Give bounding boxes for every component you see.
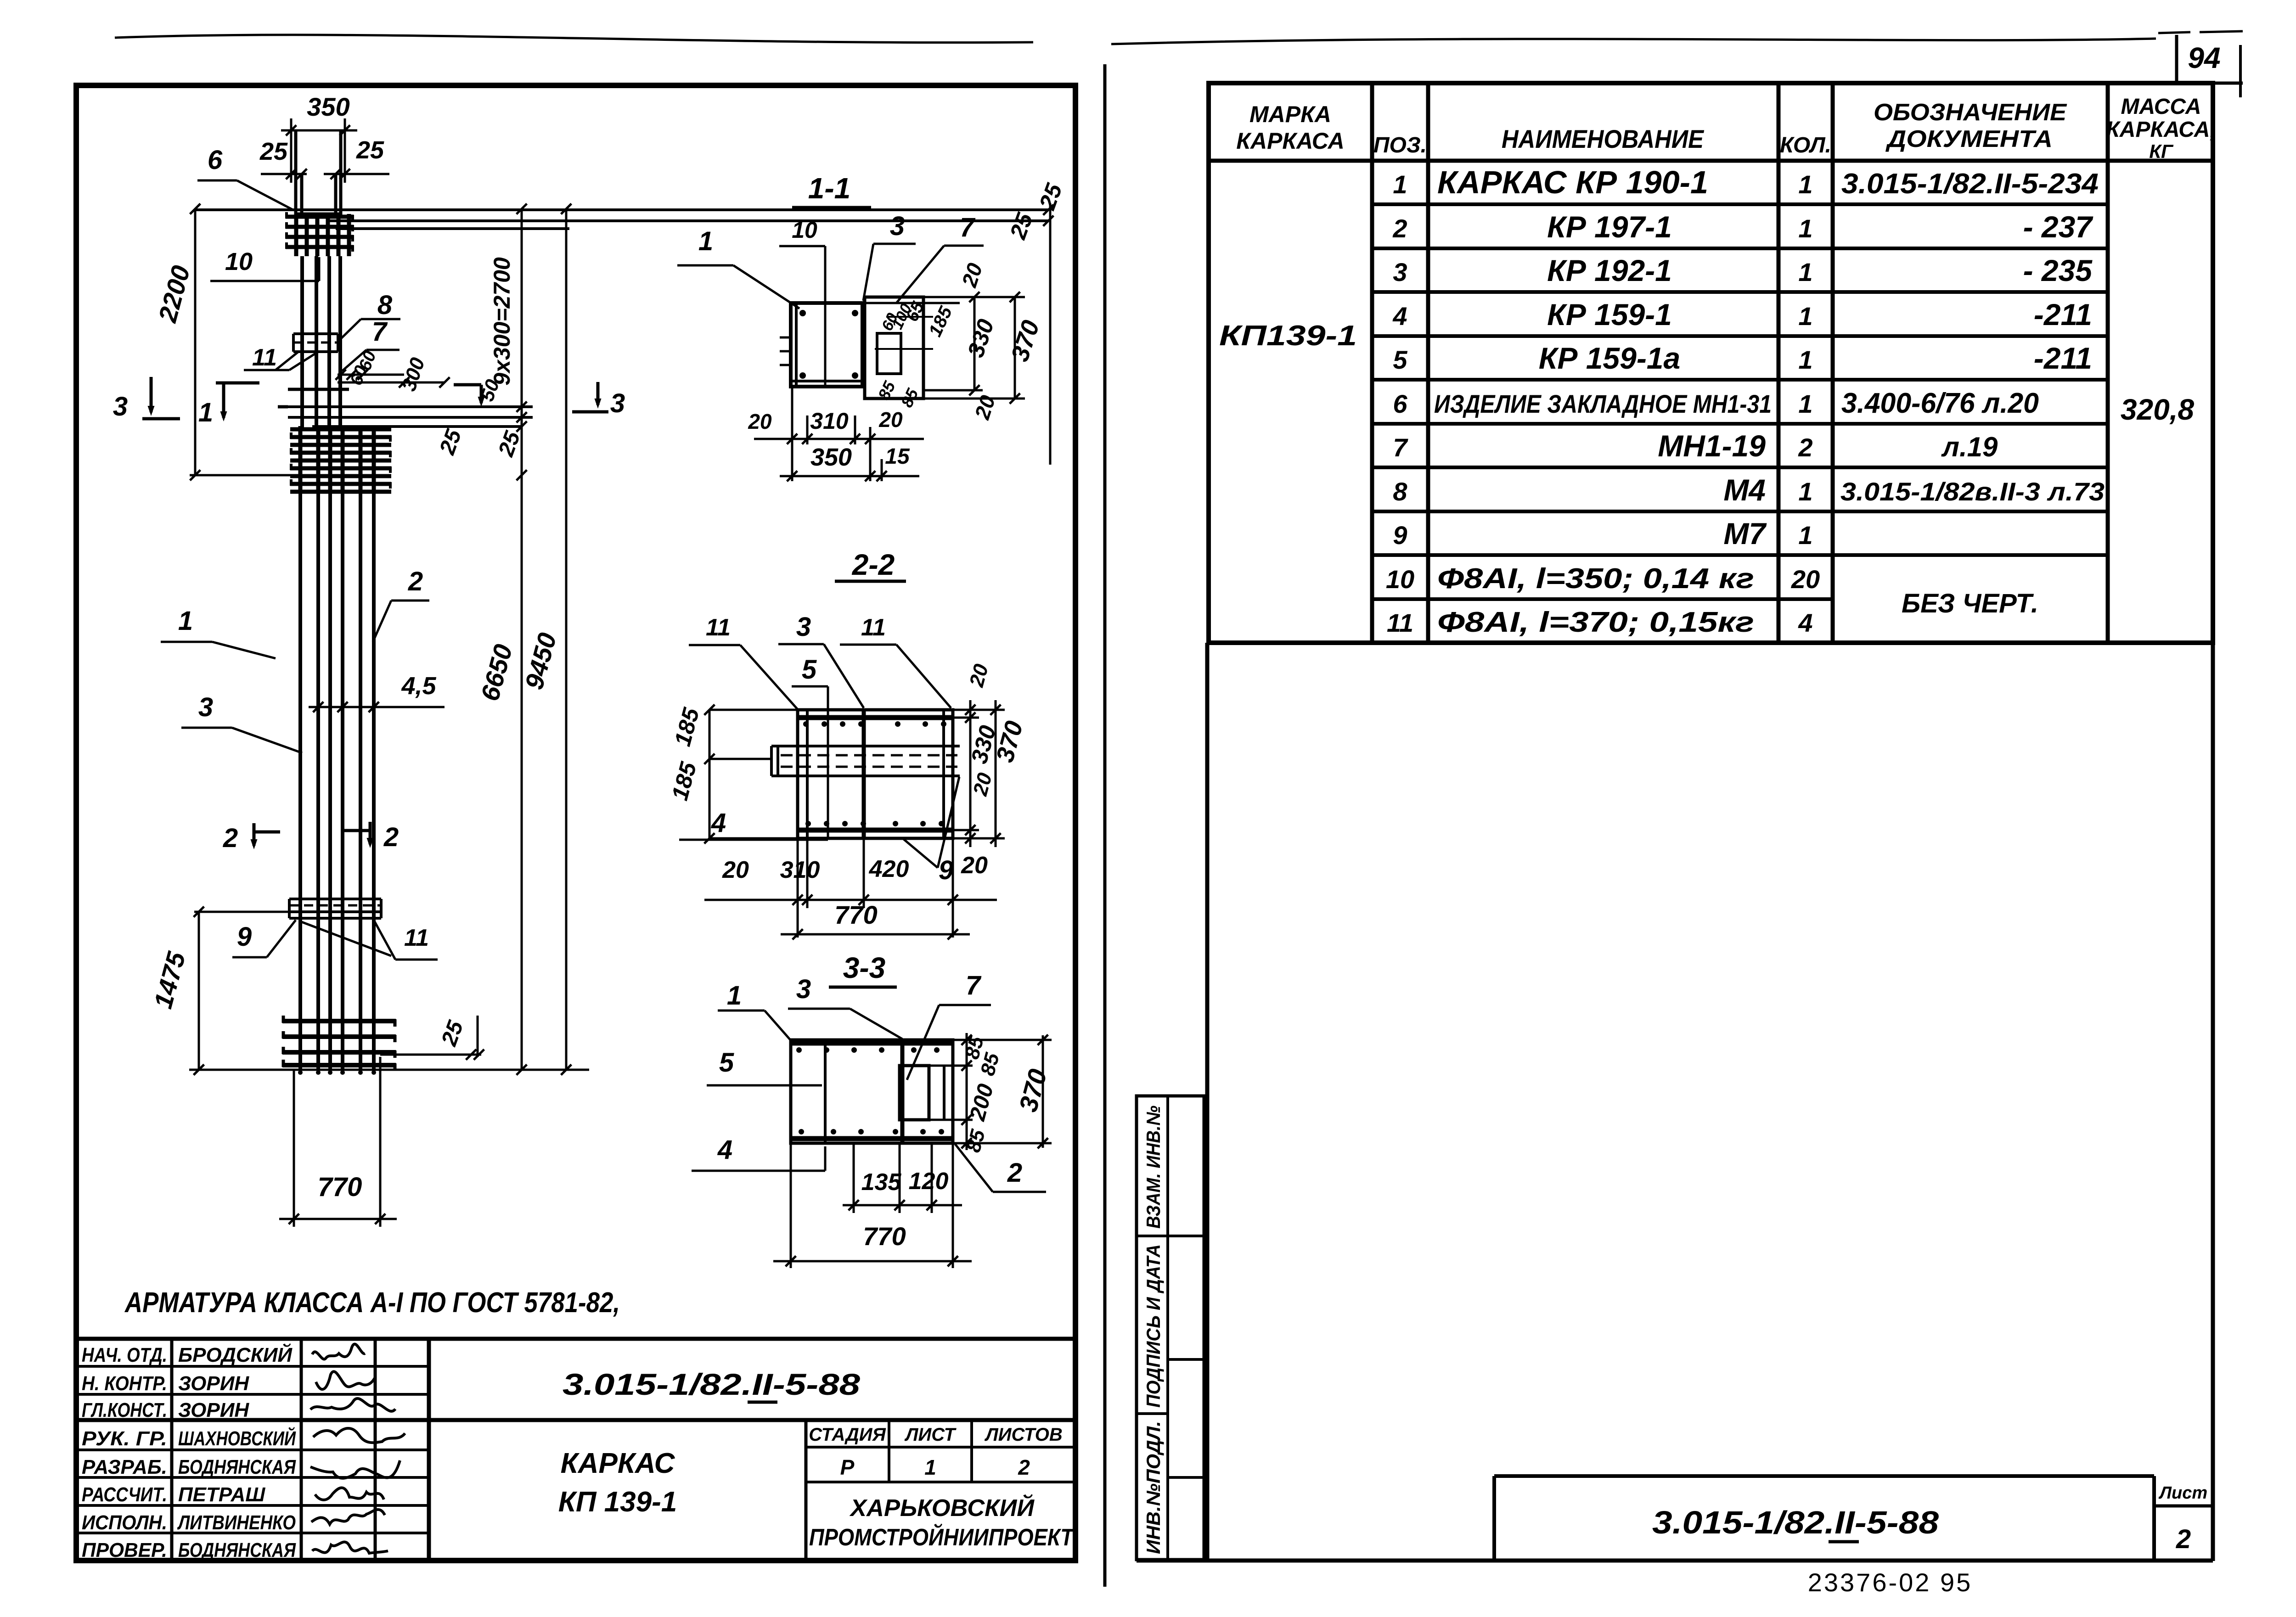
svg-text:1: 1 bbox=[1798, 521, 1812, 550]
svg-text:5: 5 bbox=[719, 1048, 734, 1078]
svg-text:25: 25 bbox=[356, 136, 384, 164]
svg-text:ЛИТВИНЕНКО: ЛИТВИНЕНКО bbox=[177, 1511, 296, 1534]
svg-text:7: 7 bbox=[1393, 433, 1408, 462]
svg-text:ЛИСТ: ЛИСТ bbox=[904, 1425, 957, 1445]
svg-text:НАЧ. ОТД.: НАЧ. ОТД. bbox=[82, 1344, 167, 1366]
svg-text:ИСПОЛН.: ИСПОЛН. bbox=[82, 1511, 167, 1534]
svg-text:2: 2 bbox=[2176, 1524, 2191, 1554]
svg-text:3: 3 bbox=[198, 692, 213, 722]
svg-text:3.015-1/82.II-5-234: 3.015-1/82.II-5-234 bbox=[1841, 168, 2099, 200]
svg-text:1: 1 bbox=[1798, 170, 1812, 199]
svg-text:3.015-1/82.II-5-88: 3.015-1/82.II-5-88 bbox=[563, 1367, 860, 1401]
svg-text:20: 20 bbox=[1791, 565, 1820, 594]
svg-text:10: 10 bbox=[225, 248, 253, 275]
svg-text:7: 7 bbox=[966, 971, 982, 1000]
svg-text:2: 2 bbox=[1798, 433, 1812, 462]
svg-text:350: 350 bbox=[810, 444, 852, 471]
svg-text:КАРКАС КР 190-1: КАРКАС КР 190-1 bbox=[1437, 164, 1708, 200]
svg-text:ПРОМСТРОЙНИИПРОЕКТ: ПРОМСТРОЙНИИПРОЕКТ bbox=[809, 1523, 1075, 1551]
svg-text:КР 197-1: КР 197-1 bbox=[1547, 210, 1672, 244]
svg-text:РАССЧИТ.: РАССЧИТ. bbox=[82, 1483, 167, 1506]
svg-text:2: 2 bbox=[383, 822, 399, 852]
svg-text:3: 3 bbox=[610, 388, 625, 418]
svg-text:ПОЗ.: ПОЗ. bbox=[1373, 133, 1427, 157]
svg-text:ГЛ.КОНСТ.: ГЛ.КОНСТ. bbox=[82, 1399, 167, 1421]
svg-text:3: 3 bbox=[1393, 258, 1407, 286]
svg-text:1: 1 bbox=[924, 1455, 936, 1479]
svg-text:М4: М4 bbox=[1723, 473, 1766, 507]
svg-text:4: 4 bbox=[717, 1135, 732, 1165]
svg-text:1: 1 bbox=[1798, 302, 1812, 331]
svg-text:3.400-6/76 л.20: 3.400-6/76 л.20 bbox=[1841, 387, 2039, 419]
svg-text:8: 8 bbox=[1393, 477, 1407, 506]
svg-text:ВЗАМ. ИНВ.№: ВЗАМ. ИНВ.№ bbox=[1142, 1106, 1164, 1229]
svg-text:Лист: Лист bbox=[2158, 1483, 2207, 1503]
svg-text:310: 310 bbox=[810, 408, 849, 434]
svg-text:420: 420 bbox=[869, 856, 909, 882]
svg-text:7: 7 bbox=[372, 317, 388, 347]
svg-text:2: 2 bbox=[1392, 214, 1407, 243]
svg-text:- 237: - 237 bbox=[2023, 210, 2094, 244]
svg-text:10: 10 bbox=[792, 217, 817, 243]
svg-text:л.19: л.19 bbox=[1941, 432, 1998, 462]
svg-text:9: 9 bbox=[939, 855, 953, 885]
svg-text:6: 6 bbox=[208, 145, 223, 175]
svg-text:КР 159-1а: КР 159-1а bbox=[1539, 341, 1680, 375]
svg-text:11: 11 bbox=[861, 614, 886, 641]
svg-text:770: 770 bbox=[318, 1172, 362, 1202]
svg-text:-211: -211 bbox=[2034, 341, 2092, 375]
svg-text:Ф8АI, l=370; 0,15кг: Ф8АI, l=370; 0,15кг bbox=[1437, 606, 1754, 638]
svg-text:ИЗДЕЛИЕ ЗАКЛАДНОЕ МН1-31: ИЗДЕЛИЕ ЗАКЛАДНОЕ МН1-31 bbox=[1434, 389, 1772, 418]
svg-text:9: 9 bbox=[1393, 521, 1407, 550]
svg-text:БРОДСКИЙ: БРОДСКИЙ bbox=[178, 1343, 293, 1366]
svg-text:11: 11 bbox=[252, 344, 277, 371]
svg-text:Н. КОНТР.: Н. КОНТР. bbox=[82, 1372, 167, 1395]
svg-text:ЗОРИН: ЗОРИН bbox=[178, 1399, 249, 1421]
svg-text:3: 3 bbox=[113, 392, 128, 421]
svg-text:МН1-19: МН1-19 bbox=[1658, 429, 1766, 463]
svg-text:1: 1 bbox=[698, 226, 713, 256]
svg-text:25: 25 bbox=[259, 138, 288, 165]
svg-text:1: 1 bbox=[1798, 477, 1812, 506]
svg-text:135: 135 bbox=[861, 1169, 902, 1196]
svg-text:770: 770 bbox=[863, 1222, 906, 1251]
svg-text:2: 2 bbox=[223, 823, 238, 853]
svg-text:1: 1 bbox=[1798, 389, 1812, 418]
svg-text:20: 20 bbox=[722, 857, 749, 883]
svg-text:МАССА: МАССА bbox=[2121, 95, 2201, 119]
svg-text:ЗОРИН: ЗОРИН bbox=[178, 1372, 249, 1395]
svg-text:БЕЗ ЧЕРТ.: БЕЗ ЧЕРТ. bbox=[1902, 589, 2038, 618]
svg-text:КП 139-1: КП 139-1 bbox=[558, 1486, 677, 1518]
svg-text:НАИМЕНОВАНИЕ: НАИМЕНОВАНИЕ bbox=[1502, 124, 1704, 153]
svg-text:-211: -211 bbox=[2034, 298, 2092, 331]
svg-text:11: 11 bbox=[1387, 608, 1413, 637]
svg-text:3: 3 bbox=[796, 974, 811, 1004]
svg-text:КР 159-1: КР 159-1 bbox=[1547, 298, 1672, 331]
svg-text:120: 120 bbox=[909, 1168, 949, 1195]
svg-text:БОДНЯНСКАЯ: БОДНЯНСКАЯ bbox=[178, 1539, 296, 1561]
svg-text:КАРКАСА,: КАРКАСА, bbox=[2106, 118, 2216, 142]
svg-text:1: 1 bbox=[727, 981, 742, 1011]
svg-text:ОБОЗНАЧЕНИЕ: ОБОЗНАЧЕНИЕ bbox=[1874, 99, 2067, 126]
svg-text:11: 11 bbox=[706, 614, 731, 641]
svg-text:3: 3 bbox=[890, 211, 905, 241]
svg-text:КОЛ.: КОЛ. bbox=[1780, 133, 1831, 157]
svg-text:94: 94 bbox=[2188, 41, 2220, 74]
svg-text:3.015-1/82в.II-3 л.73: 3.015-1/82в.II-3 л.73 bbox=[1840, 477, 2105, 506]
svg-text:7: 7 bbox=[960, 213, 976, 242]
svg-text:- 235: - 235 bbox=[2023, 253, 2093, 287]
svg-text:М7: М7 bbox=[1723, 517, 1767, 550]
svg-text:10: 10 bbox=[1386, 565, 1414, 594]
svg-text:2: 2 bbox=[408, 567, 423, 596]
svg-text:4,5: 4,5 bbox=[401, 672, 436, 700]
svg-text:9: 9 bbox=[237, 922, 252, 952]
svg-text:БОДНЯНСКАЯ: БОДНЯНСКАЯ bbox=[178, 1456, 296, 1478]
svg-text:770: 770 bbox=[834, 900, 877, 929]
svg-text:КАРКАС: КАРКАС bbox=[561, 1448, 675, 1479]
svg-text:Ф8АI, l=350; 0,14 кг: Ф8АI, l=350; 0,14 кг bbox=[1437, 563, 1754, 595]
svg-text:15: 15 bbox=[885, 444, 910, 469]
svg-text:ПРОВЕР.: ПРОВЕР. bbox=[82, 1539, 167, 1561]
svg-text:20: 20 bbox=[961, 852, 988, 879]
svg-text:КГ: КГ bbox=[2149, 140, 2174, 162]
svg-text:5: 5 bbox=[802, 655, 817, 685]
svg-text:ИНВ.№ПОДЛ.: ИНВ.№ПОДЛ. bbox=[1142, 1421, 1164, 1554]
svg-text:11: 11 bbox=[404, 925, 429, 951]
svg-text:3.015-1/82.II-5-88: 3.015-1/82.II-5-88 bbox=[1652, 1505, 1939, 1540]
svg-text:1: 1 bbox=[178, 606, 193, 636]
svg-text:350: 350 bbox=[307, 92, 349, 121]
svg-text:4: 4 bbox=[1392, 302, 1407, 331]
svg-text:КР 192-1: КР 192-1 bbox=[1547, 253, 1672, 287]
svg-text:РУК. ГР.: РУК. ГР. bbox=[82, 1427, 167, 1450]
svg-text:2-2: 2-2 bbox=[852, 548, 895, 581]
svg-text:1: 1 bbox=[198, 398, 213, 427]
svg-text:1-1: 1-1 bbox=[808, 172, 851, 205]
svg-text:20: 20 bbox=[878, 408, 903, 432]
svg-text:СТАДИЯ: СТАДИЯ bbox=[809, 1425, 886, 1445]
svg-text:2: 2 bbox=[1018, 1455, 1030, 1479]
svg-text:ЛИСТОВ: ЛИСТОВ bbox=[984, 1425, 1063, 1445]
svg-text:АРМАТУРА КЛАССА А-I ПО ГОС: АРМАТУРА КЛАССА А-I ПО ГОСТ 5781-82, bbox=[124, 1287, 620, 1319]
svg-text:ШАХНОВСКИЙ: ШАХНОВСКИЙ bbox=[178, 1426, 296, 1450]
svg-text:ХАРЬКОВСКИЙ: ХАРЬКОВСКИЙ bbox=[849, 1494, 1035, 1522]
svg-text:20: 20 bbox=[748, 410, 772, 433]
svg-text:4: 4 bbox=[1798, 608, 1812, 637]
svg-text:6: 6 bbox=[1393, 389, 1407, 418]
svg-text:КП139-1: КП139-1 bbox=[1219, 320, 1357, 352]
svg-text:320,8: 320,8 bbox=[2121, 393, 2195, 426]
svg-text:ПОДПИСЬ И ДАТА: ПОДПИСЬ И ДАТА bbox=[1142, 1244, 1164, 1408]
svg-text:1: 1 bbox=[1798, 345, 1812, 374]
svg-text:23376-02 95: 23376-02 95 bbox=[1808, 1568, 1973, 1597]
svg-text:2: 2 bbox=[1007, 1158, 1022, 1188]
svg-text:КАРКАСА: КАРКАСА bbox=[1236, 128, 1345, 154]
svg-text:1: 1 bbox=[1798, 214, 1812, 243]
svg-text:1: 1 bbox=[1393, 170, 1407, 199]
svg-text:310: 310 bbox=[780, 857, 820, 883]
svg-text:МАРКА: МАРКА bbox=[1249, 101, 1331, 127]
svg-text:5: 5 bbox=[1393, 345, 1407, 374]
svg-text:Р: Р bbox=[840, 1455, 855, 1479]
svg-text:ПЕТРАШ: ПЕТРАШ bbox=[178, 1483, 265, 1506]
svg-text:9x300=2700: 9x300=2700 bbox=[489, 257, 515, 386]
svg-text:8: 8 bbox=[377, 290, 393, 320]
svg-text:ДОКУМЕНТА: ДОКУМЕНТА bbox=[1885, 126, 2053, 152]
svg-text:3-3: 3-3 bbox=[843, 951, 886, 984]
svg-text:1: 1 bbox=[1798, 258, 1812, 286]
svg-text:3: 3 bbox=[796, 612, 811, 642]
svg-text:РАЗРАБ.: РАЗРАБ. bbox=[82, 1456, 167, 1478]
